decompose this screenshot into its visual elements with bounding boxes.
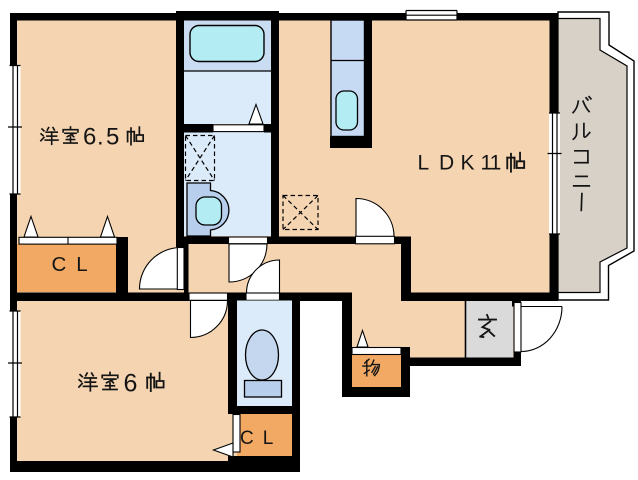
svg-text:CL: CL bbox=[240, 428, 282, 449]
svg-text:6: 6 bbox=[124, 370, 138, 398]
svg-text:CL: CL bbox=[52, 253, 98, 276]
svg-text:5: 5 bbox=[106, 124, 119, 151]
svg-text:11: 11 bbox=[481, 152, 501, 175]
svg-text:L: L bbox=[418, 152, 430, 175]
svg-text:6: 6 bbox=[83, 124, 96, 151]
svg-text:K: K bbox=[461, 152, 475, 175]
svg-text:.: . bbox=[97, 124, 104, 151]
svg-text:D: D bbox=[439, 152, 454, 175]
